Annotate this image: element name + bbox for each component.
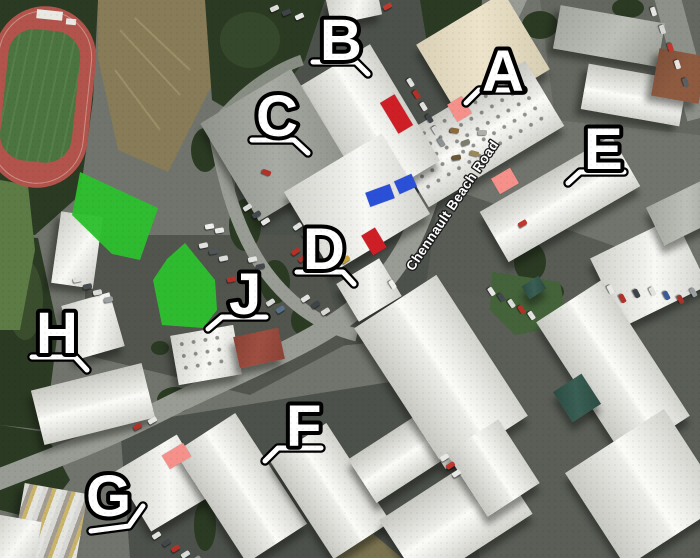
marker-j[interactable]: J	[208, 262, 266, 329]
marker-letter-f[interactable]: F	[286, 394, 321, 459]
marker-letter-e[interactable]: E	[584, 117, 623, 182]
marker-a[interactable]: A	[466, 39, 524, 104]
marker-letter-g[interactable]: G	[86, 464, 131, 529]
marker-letter-d[interactable]: D	[303, 217, 345, 282]
labels-layer: Chennault Beach Road A B C D E F G	[0, 0, 700, 558]
marker-letter-h[interactable]: H	[36, 301, 78, 366]
marker-e[interactable]: E	[568, 117, 624, 183]
marker-letter-b[interactable]: B	[320, 8, 362, 73]
marker-c[interactable]: C	[252, 84, 308, 153]
road-label: Chennault Beach Road	[403, 138, 501, 274]
marker-letter-j[interactable]: J	[229, 262, 261, 327]
marker-letter-a[interactable]: A	[482, 39, 524, 104]
satellite-map: Chennault Beach Road A B C D E F G	[0, 0, 700, 558]
marker-f[interactable]: F	[265, 394, 321, 461]
marker-b[interactable]: B	[313, 8, 368, 74]
marker-d[interactable]: D	[297, 217, 354, 284]
marker-g[interactable]: G	[86, 464, 143, 531]
marker-letter-c[interactable]: C	[256, 84, 298, 149]
marker-h[interactable]: H	[32, 301, 87, 370]
